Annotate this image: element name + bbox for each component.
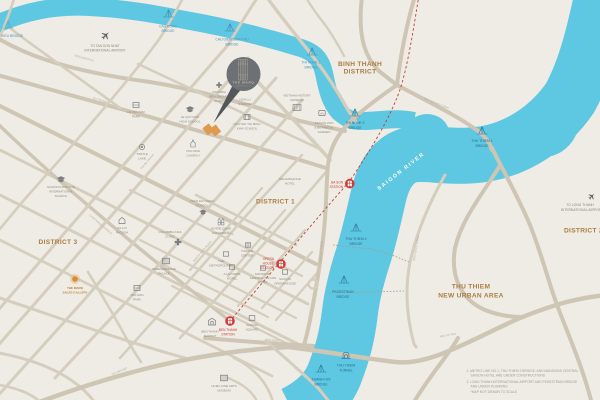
svg-text:LE QUY DON: LE QUY DON	[181, 115, 199, 119]
svg-text:BRIDGE: BRIDGE	[337, 295, 351, 299]
svg-text:A LA CARTE: A LA CARTE	[223, 272, 240, 276]
svg-text:BRIDGE: BRIDGE	[226, 43, 240, 47]
svg-text:BRIDGE: BRIDGE	[162, 29, 176, 33]
svg-text:PAGODA: PAGODA	[116, 231, 129, 235]
svg-text:ARE UNDER PLANNING: ARE UNDER PLANNING	[471, 384, 509, 388]
svg-text:THI NGHE 1: THI NGHE 1	[301, 61, 320, 65]
svg-text:THI NGHE 2: THI NGHE 2	[345, 121, 364, 125]
svg-text:SAIGON HOTEL ARE UNDER CONSTRU: SAIGON HOTEL ARE UNDER CONSTRUCTIONS	[471, 374, 546, 378]
svg-text:*MAP NOT DRAWN TO SCALE: *MAP NOT DRAWN TO SCALE	[471, 390, 518, 394]
svg-text:GARDEN: GARDEN	[318, 130, 331, 134]
svg-text:OPERA HOUSE: OPERA HOUSE	[274, 282, 296, 286]
svg-text:KHANH HOI: KHANH HOI	[312, 378, 331, 382]
svg-text:PARK: PARK	[132, 115, 140, 119]
svg-text:HOA LU: HOA LU	[239, 98, 250, 102]
svg-text:TO LONG THANH: TO LONG THANH	[566, 203, 594, 207]
svg-text:THE: THE	[218, 259, 224, 263]
svg-text:INTERNATIONAL AIRPORT: INTERNATIONAL AIRPORT	[561, 208, 600, 212]
svg-text:DISTRICT 1: DISTRICT 1	[256, 199, 295, 206]
svg-text:DISTRICT 3: DISTRICT 3	[39, 239, 78, 246]
svg-text:COLUMBIA ASIA: COLUMBIA ASIA	[158, 230, 181, 234]
svg-text:THU THIEM: THU THIEM	[452, 284, 491, 291]
svg-text:HIGH SCHOOL: HIGH SCHOOL	[179, 120, 200, 124]
svg-text:HOTEL: HOTEL	[285, 182, 295, 186]
svg-text:BRIDGE: BRIDGE	[349, 126, 363, 130]
svg-text:VINCOM: VINCOM	[241, 249, 254, 253]
svg-text:& BOTANICAL: & BOTANICAL	[314, 126, 334, 130]
svg-text:THE MARQ: THE MARQ	[67, 286, 84, 290]
svg-text:DISTRICT: DISTRICT	[344, 69, 377, 76]
svg-text:INDEPENDENCE: INDEPENDENCE	[152, 267, 176, 271]
svg-text:SAIGON INSTITUTE: SAIGON INSTITUTE	[47, 185, 75, 189]
svg-text:CAU DIEN BIEN PHU: CAU DIEN BIEN PHU	[215, 38, 249, 42]
svg-text:HOUSE: HOUSE	[263, 262, 274, 266]
svg-text:STATION: STATION	[221, 333, 235, 337]
svg-text:BRIDGE: BRIDGE	[315, 383, 329, 387]
svg-text:NGUYEN THI MINH: NGUYEN THI MINH	[234, 122, 261, 126]
svg-text:CHURCH: CHURCH	[187, 154, 200, 158]
svg-text:XA LOI: XA LOI	[117, 226, 127, 230]
svg-text:PEDESTRIAN: PEDESTRIAN	[332, 290, 354, 294]
svg-text:DISTRICT 2: DISTRICT 2	[564, 228, 600, 235]
svg-text:THU THIEM 2: THU THIEM 2	[345, 237, 366, 241]
svg-text:BRIDGE: BRIDGE	[476, 144, 490, 148]
svg-text:HOTEL: HOTEL	[227, 277, 237, 281]
svg-text:TUNNEL: TUNNEL	[339, 369, 353, 373]
svg-text:NEW URBAN AREA: NEW URBAN AREA	[438, 293, 504, 300]
svg-text:BA SON: BA SON	[331, 181, 344, 185]
svg-text:TRAN DAI NGHIA: TRAN DAI NGHIA	[190, 199, 214, 203]
svg-text:THU THIEM: THU THIEM	[337, 364, 356, 368]
svg-text:CAU KIEU BRIDGE: CAU KIEU BRIDGE	[0, 34, 24, 38]
svg-text:BINH THANH: BINH THANH	[338, 61, 382, 68]
svg-text:HCMC FINE ARTS: HCMC FINE ARTS	[211, 384, 236, 388]
svg-text:INTERNATIONAL: INTERNATIONAL	[49, 190, 73, 194]
svg-text:SALES GALLERY: SALES GALLERY	[62, 291, 87, 295]
svg-text:CAU BONG: CAU BONG	[159, 25, 177, 29]
svg-text:BEN THANH: BEN THANH	[219, 328, 238, 332]
svg-text:BEN THANH: BEN THANH	[201, 330, 218, 334]
svg-text:DISTRICT 1: DISTRICT 1	[237, 86, 251, 88]
svg-text:HEALTHCARE: HEALTHCARE	[209, 95, 229, 99]
svg-text:CLINIC: CLINIC	[214, 99, 225, 103]
svg-text:LAKE: LAKE	[138, 157, 146, 161]
svg-text:PALACE: PALACE	[158, 272, 170, 276]
svg-text:RENAISSANCE: RENAISSANCE	[279, 177, 301, 181]
svg-text:MARKET: MARKET	[204, 334, 217, 338]
svg-text:MUSEUM: MUSEUM	[290, 98, 304, 102]
svg-text:SCHOOL: SCHOOL	[196, 204, 209, 208]
svg-text:OPERA: OPERA	[263, 257, 275, 261]
svg-text:BRIDGE: BRIDGE	[305, 66, 319, 70]
svg-text:VICTORIA: VICTORIA	[212, 90, 226, 94]
svg-text:1. METRO LINE NO.1, THU THIEM: 1. METRO LINE NO.1, THU THIEM 2 BRIDGE, …	[467, 369, 579, 373]
svg-text:TURTLE: TURTLE	[136, 152, 148, 156]
svg-text:SAIGON ZOO: SAIGON ZOO	[314, 121, 334, 125]
svg-text:LE VAN TAM: LE VAN TAM	[127, 110, 145, 114]
svg-text:2. LONG THANH INTERNATIONAL AI: 2. LONG THANH INTERNATIONAL AIRPORT AND …	[467, 380, 578, 384]
svg-text:MUSEUM: MUSEUM	[217, 389, 231, 393]
svg-text:SQUARE: SQUARE	[246, 328, 259, 332]
svg-text:THU THIEM 1: THU THIEM 1	[471, 139, 492, 143]
svg-text:SAIGON: SAIGON	[246, 323, 258, 327]
svg-text:STATION: STATION	[330, 185, 344, 189]
svg-text:STADIUM: STADIUM	[238, 102, 252, 106]
svg-text:SCHOOL: SCHOOL	[55, 194, 68, 198]
svg-text:VIETNAM HISTORY: VIETNAM HISTORY	[283, 94, 310, 98]
svg-text:PARK: PARK	[133, 298, 141, 302]
svg-text:HOTEL: HOTEL	[258, 280, 268, 284]
svg-text:TO TAN SON NHAT: TO TAN SON NHAT	[90, 44, 119, 48]
svg-text:THE MARQ: THE MARQ	[232, 80, 254, 84]
svg-text:TAN DINH: TAN DINH	[186, 149, 200, 153]
svg-text:INTERNATIONAL AIRPORT: INTERNATIONAL AIRPORT	[84, 49, 125, 53]
svg-text:TAO DAN: TAO DAN	[130, 293, 143, 297]
svg-text:KHAI SCHOOL: KHAI SCHOOL	[237, 127, 258, 131]
svg-text:STATION: STATION	[261, 266, 275, 270]
svg-text:BRIDGE: BRIDGE	[350, 242, 364, 246]
svg-text:CENTER: CENTER	[241, 254, 254, 258]
svg-text:SAIGON: SAIGON	[279, 277, 291, 281]
svg-text:CLINIC: CLINIC	[165, 235, 176, 239]
